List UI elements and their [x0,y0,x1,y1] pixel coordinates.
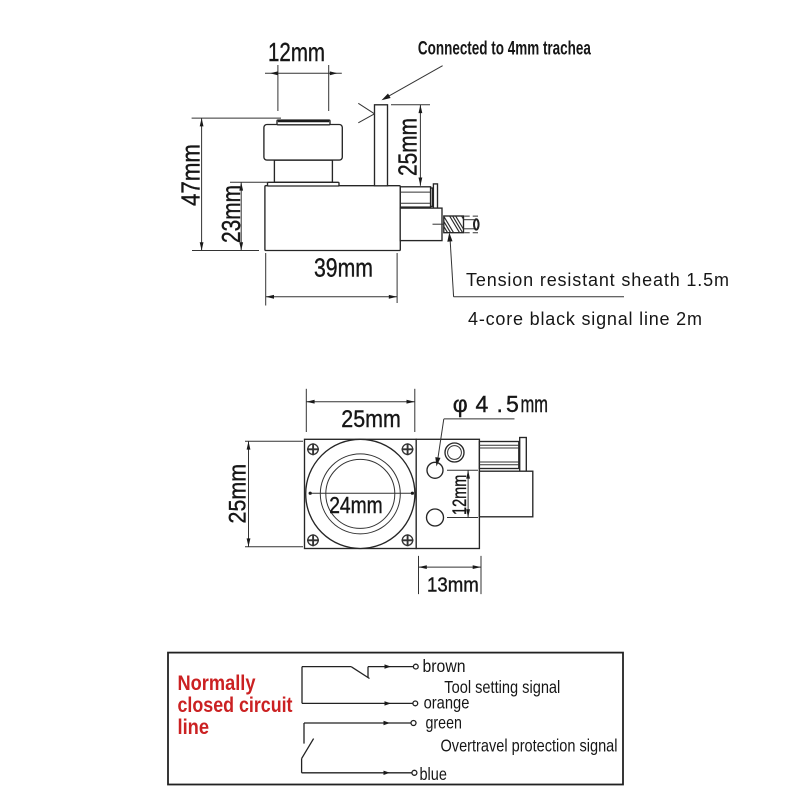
svg-text:12mm: 12mm [450,475,471,515]
svg-text:φ4.5mm: φ4.5mm [453,391,548,417]
svg-text:Normally: Normally [178,672,256,695]
svg-text:12mm: 12mm [268,37,325,67]
svg-text:25mm: 25mm [225,464,252,524]
svg-text:Tension resistant sheath 1.5m: Tension resistant sheath 1.5m [466,270,729,290]
svg-text:blue: blue [420,764,447,784]
svg-text:Connected to 4mm trachea: Connected to 4mm trachea [418,39,591,60]
svg-text:Overtravel protection signal: Overtravel protection signal [441,735,618,755]
svg-text:47mm: 47mm [176,144,206,206]
svg-text:25mm: 25mm [341,406,401,433]
svg-text:4-core black signal line 2m: 4-core black signal line 2m [468,309,702,329]
svg-text:brown: brown [423,656,466,676]
svg-text:green: green [426,712,462,732]
svg-text:13mm: 13mm [427,575,479,597]
svg-text:25mm: 25mm [393,118,423,176]
svg-text:39mm: 39mm [314,253,373,283]
svg-text:closed circuit: closed circuit [178,694,293,717]
svg-text:23mm: 23mm [216,185,246,243]
svg-text:line: line [178,716,210,739]
svg-text:Tool setting signal: Tool setting signal [444,677,560,697]
svg-text:24mm: 24mm [329,492,383,518]
